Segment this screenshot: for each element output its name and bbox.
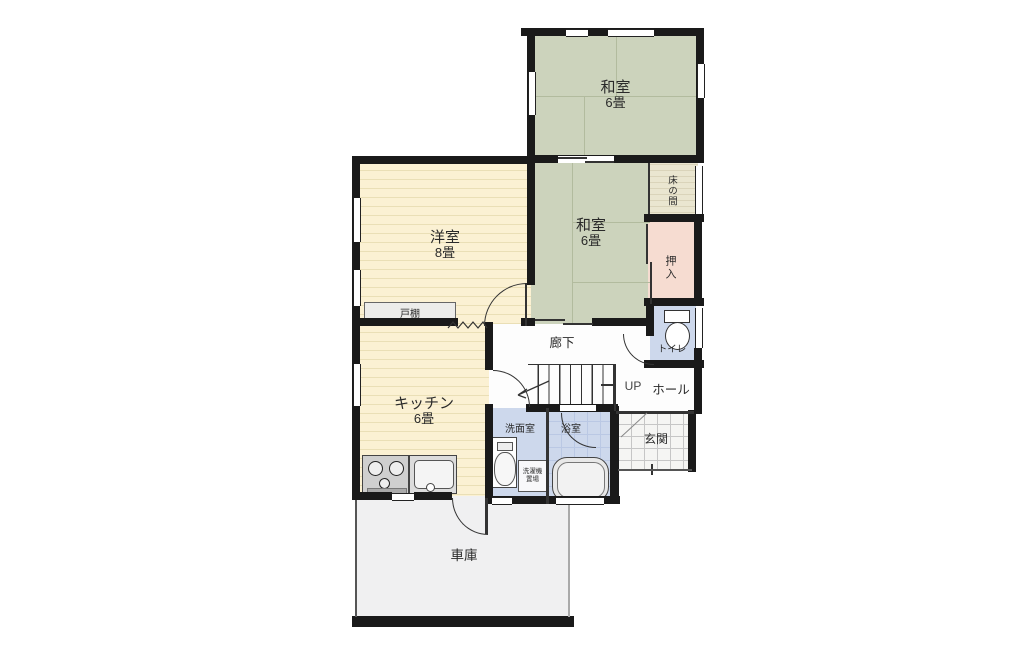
label-washitsu-mid: 和室 6畳 — [531, 214, 651, 252]
vanity-basin — [494, 452, 516, 486]
wall-thin — [614, 364, 616, 411]
wall-thin — [648, 163, 650, 214]
stove-burner — [368, 461, 383, 476]
label-shako: 車庫 — [438, 544, 490, 564]
wall — [694, 222, 702, 306]
window — [608, 29, 654, 37]
sliding-door — [650, 262, 652, 304]
label-kitchen: キッチン 6畳 — [358, 392, 490, 430]
stairs-landing-line — [601, 384, 614, 386]
window — [353, 270, 361, 306]
genkan-step-line — [616, 411, 694, 414]
window — [695, 308, 703, 348]
wall — [485, 322, 493, 370]
label-yoshitsu: 洋室 8畳 — [365, 226, 525, 264]
sink-drain — [426, 483, 435, 492]
vanity-icon — [490, 437, 517, 488]
window — [695, 166, 703, 214]
tatami-seam — [572, 282, 650, 283]
stove-icon — [362, 455, 409, 494]
washer-label: 洗濯機置場 — [522, 468, 544, 484]
window — [556, 497, 604, 505]
wall — [356, 492, 392, 500]
label-toilet: トイレ — [648, 341, 696, 355]
wall-garage-front — [352, 616, 574, 627]
label-washitsu-top: 和室 6畳 — [531, 76, 700, 114]
wall — [646, 306, 654, 336]
wall-thin — [355, 500, 357, 617]
label-genkan: 玄関 — [634, 430, 678, 447]
window — [392, 493, 414, 501]
genkan-floor-line — [618, 469, 692, 471]
wall-thin — [568, 504, 570, 617]
label-up: UP — [620, 379, 646, 393]
vanity-faucet — [497, 442, 513, 451]
stove-burner — [389, 461, 404, 476]
wall — [688, 410, 696, 472]
label-oshiire: 押入 — [662, 238, 678, 298]
sliding-door — [563, 323, 593, 325]
label-hall: ホール — [646, 379, 696, 398]
wall — [610, 406, 619, 504]
wall — [592, 318, 648, 326]
wall — [527, 155, 704, 163]
kitchen-sink-icon — [409, 455, 457, 494]
wall — [356, 318, 458, 326]
door-opening — [560, 405, 596, 411]
sliding-door — [585, 161, 614, 163]
label-tokonoma: 床の間 — [664, 164, 678, 218]
label-yokushitsu: 浴室 — [552, 420, 590, 435]
floor-plan: 戸棚 洗濯機置場 — [0, 0, 1023, 663]
window — [492, 497, 512, 505]
sliding-door — [535, 319, 565, 321]
label-senmenshitsu: 洗面室 — [494, 420, 546, 435]
wall — [414, 492, 452, 500]
wall — [352, 156, 535, 164]
wall-thin — [546, 408, 549, 504]
washer-area: 洗濯機置場 — [518, 460, 547, 492]
bathtub-inner — [557, 462, 605, 498]
window — [353, 198, 361, 242]
label-rouka: 廊下 — [536, 332, 588, 351]
sliding-door — [558, 157, 587, 159]
window — [566, 29, 588, 37]
